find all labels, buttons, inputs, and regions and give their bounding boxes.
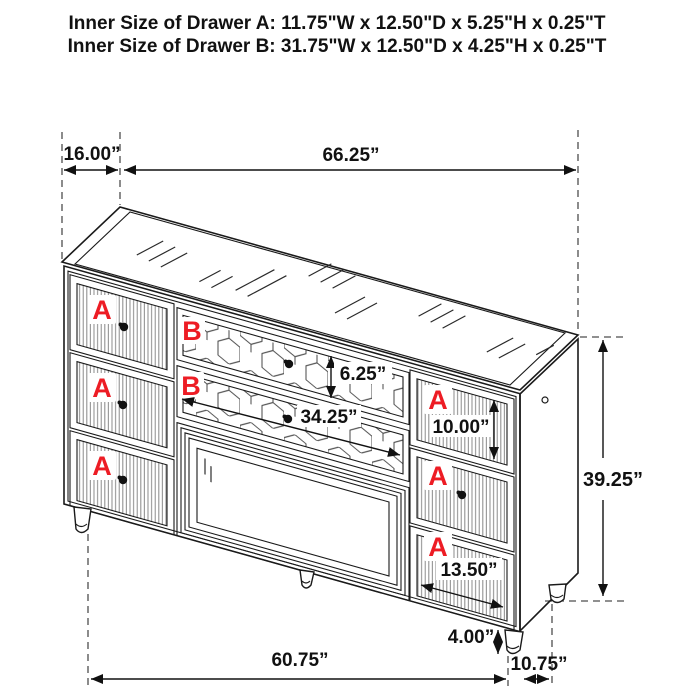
svg-text:A: A bbox=[92, 295, 112, 325]
furniture-dimension-diagram: Inner Size of Drawer A: 11.75"W x 12.50"… bbox=[0, 0, 700, 700]
dimension-width-bottom: 60.75” bbox=[91, 650, 506, 679]
back-right-leg bbox=[549, 584, 566, 603]
dim-label-depth-top: 16.00” bbox=[63, 144, 120, 165]
dimension-width-top: 66.25” bbox=[124, 145, 576, 170]
dim-label-drawer-b-height: 6.25” bbox=[340, 364, 386, 385]
dim-label-leg-height: 4.00” bbox=[448, 627, 494, 648]
front-right-leg bbox=[505, 630, 523, 654]
drawer-a-left-3-label: A bbox=[88, 451, 116, 481]
svg-text:A: A bbox=[428, 532, 448, 562]
dim-label-drawer-a-width: 13.50” bbox=[440, 560, 497, 581]
svg-text:A: A bbox=[92, 451, 112, 481]
dim-label-width-top: 66.25” bbox=[322, 145, 379, 166]
dim-label-overall-height: 39.25” bbox=[583, 469, 643, 491]
svg-text:A: A bbox=[428, 385, 448, 415]
drawer-b-1-label: B bbox=[179, 316, 205, 346]
dimension-leg-height: 4.00” bbox=[448, 627, 498, 654]
cabinet: A A A B B A A bbox=[62, 207, 578, 654]
svg-text:A: A bbox=[428, 461, 448, 491]
dim-label-drawer-a-height: 10.00” bbox=[432, 417, 489, 438]
dimension-depth-bottom: 10.75” bbox=[510, 654, 567, 679]
drawer-a-right-3-label: A bbox=[424, 532, 452, 562]
drawer-a-left-1-label: A bbox=[88, 295, 116, 325]
drawer-a-left-2-label: A bbox=[88, 373, 116, 403]
drawer-a-right-1-label: A bbox=[424, 385, 452, 415]
dimension-overall-height: 39.25” bbox=[583, 340, 643, 596]
side-panel-hole bbox=[542, 397, 548, 403]
header-line-drawer-b: Inner Size of Drawer B: 31.75"W x 12.50"… bbox=[68, 36, 607, 57]
front-left-leg bbox=[74, 507, 91, 533]
drawer-a-right-2-label: A bbox=[424, 461, 452, 491]
svg-text:B: B bbox=[182, 316, 202, 346]
header-line-drawer-a: Inner Size of Drawer A: 11.75"W x 12.50"… bbox=[69, 13, 606, 34]
dim-label-drawer-b-width: 34.25” bbox=[300, 407, 357, 428]
dim-label-width-bottom: 60.75” bbox=[271, 650, 328, 671]
header: Inner Size of Drawer A: 11.75"W x 12.50"… bbox=[68, 13, 607, 57]
dimension-depth-top: 16.00” bbox=[63, 144, 120, 170]
drawer-b-2-label: B bbox=[178, 371, 204, 401]
svg-text:A: A bbox=[92, 373, 112, 403]
middle-leg bbox=[300, 570, 314, 588]
dim-label-depth-bottom: 10.75” bbox=[510, 654, 567, 675]
svg-text:B: B bbox=[181, 371, 201, 401]
